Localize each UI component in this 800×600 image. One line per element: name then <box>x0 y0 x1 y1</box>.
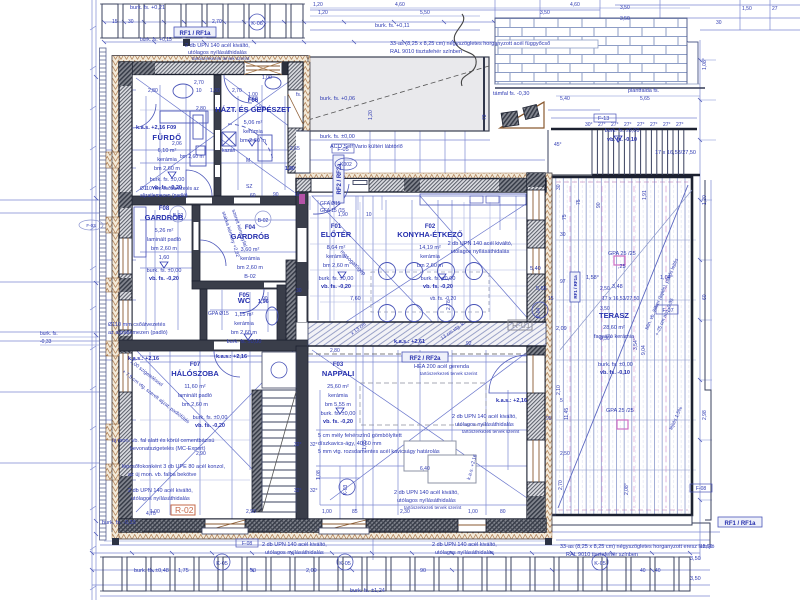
svg-text:HÁZT. ÉS GÉPÉSZET: HÁZT. ÉS GÉPÉSZET <box>215 105 291 114</box>
svg-text:RF1 / RF1a: RF1 / RF1a <box>179 31 211 37</box>
svg-text:2,80: 2,80 <box>196 106 206 112</box>
svg-text:27°: 27° <box>650 122 658 128</box>
svg-text:k.a.s.: +2,16: k.a.s.: +2,16 <box>496 398 527 404</box>
svg-text:2 db UPN 140 acél kiváltó,: 2 db UPN 140 acél kiváltó, <box>432 542 497 548</box>
svg-text:GPA 25 /25: GPA 25 /25 <box>606 408 634 414</box>
svg-text:K-05: K-05 <box>594 561 606 567</box>
svg-text:plántfalda fs.: plántfalda fs. <box>628 88 660 94</box>
svg-text:2,70: 2,70 <box>212 19 222 25</box>
svg-text:burk. fs. +0,21: burk. fs. +0,21 <box>130 5 165 11</box>
svg-text:1,60: 1,60 <box>159 255 170 261</box>
svg-text:bm 2,60 m: bm 2,60 m <box>182 402 208 408</box>
svg-text:burk. fs. ±1,24: burk. fs. ±1,24 <box>350 588 385 594</box>
svg-text:támfal fs. -0,30: támfal fs. -0,30 <box>493 91 529 97</box>
svg-text:fs.: fs. <box>296 92 301 98</box>
svg-text:3,54°: 3,54° <box>633 338 639 350</box>
svg-text:2,98: 2,98 <box>702 410 708 420</box>
svg-text:30: 30 <box>556 184 562 190</box>
svg-text:tartószerkezeti tervek szerint: tartószerkezeti tervek szerint <box>420 371 478 376</box>
svg-text:10: 10 <box>366 212 372 218</box>
svg-text:5,40: 5,40 <box>530 266 541 272</box>
svg-text:2,80: 2,80 <box>148 88 158 94</box>
svg-text:32°: 32° <box>310 442 318 448</box>
svg-text:bm 2,60 m: bm 2,60 m <box>151 246 177 252</box>
svg-text:2,50: 2,50 <box>560 451 570 457</box>
svg-text:2 db UPN 140 acél kiváltó,: 2 db UPN 140 acél kiváltó, <box>452 414 517 420</box>
svg-text:7,60: 7,60 <box>350 296 361 302</box>
svg-text:2,65: 2,65 <box>290 146 300 152</box>
svg-text:1,15 m²: 1,15 m² <box>235 312 254 318</box>
svg-text:RF2 / RF2a: RF2 / RF2a <box>409 356 441 362</box>
svg-text:5: 5 <box>560 398 563 404</box>
svg-text:5,40: 5,40 <box>560 96 570 102</box>
svg-text:vb. fs. -0,20: vb. fs. -0,20 <box>195 423 225 429</box>
svg-text:F07: F07 <box>190 362 201 368</box>
svg-text:2,70: 2,70 <box>194 80 204 86</box>
svg-text:1,00: 1,00 <box>262 75 272 81</box>
svg-text:TERASZ: TERASZ <box>599 311 629 320</box>
svg-text:bm 5,55 m: bm 5,55 m <box>325 402 351 408</box>
svg-text:K-05: K-05 <box>339 561 351 567</box>
svg-text:15: 15 <box>548 296 554 302</box>
svg-text:tartószerkezeti tervek szerint: tartószerkezeti tervek szerint <box>462 429 520 434</box>
svg-text:B-02: B-02 <box>173 213 184 219</box>
svg-text:2,50: 2,50 <box>600 286 610 292</box>
svg-text:kerámia: kerámia <box>328 393 349 399</box>
svg-text:1,20: 1,20 <box>368 110 374 120</box>
svg-text:díszkavics-ágy, 40-60 mm: díszkavics-ágy, 40-60 mm <box>318 441 382 447</box>
svg-text:vb. fs. -0,20: vb. fs. -0,20 <box>430 296 456 302</box>
svg-text:GPA Ø15: GPA Ø15 <box>208 311 229 317</box>
svg-text:2,06: 2,06 <box>172 141 182 147</box>
svg-text:laminált padló: laminált padló <box>147 237 181 243</box>
svg-text:5 mm vtg. rozsdamentes acél ka: 5 mm vtg. rozsdamentes acél kavicságy ha… <box>318 449 440 455</box>
svg-text:6,10 m²: 6,10 m² <box>158 148 177 154</box>
svg-text:2,70: 2,70 <box>232 88 242 94</box>
svg-text:28,60 m²: 28,60 m² <box>603 325 625 331</box>
svg-text:vb. fs. -0,20: vb. fs. -0,20 <box>323 419 353 425</box>
svg-text:10: 10 <box>294 192 300 198</box>
svg-text:1,00: 1,00 <box>468 509 478 515</box>
svg-text:2,50°: 2,50° <box>600 336 612 342</box>
svg-text:3,60 m²: 3,60 m² <box>241 247 260 253</box>
svg-text:vb. fs. -0,20: vb. fs. -0,20 <box>149 276 179 282</box>
svg-text:1,80: 1,80 <box>285 166 295 172</box>
svg-text:13,90: 13,90 <box>700 544 713 550</box>
svg-text:Ø110 mm csőátvezetés az: Ø110 mm csőátvezetés az <box>140 186 199 192</box>
svg-text:2,08°: 2,08° <box>624 483 630 495</box>
svg-text:40: 40 <box>640 568 646 574</box>
svg-text:2,90: 2,90 <box>196 451 206 457</box>
svg-text:bm 2,60 m: bm 2,60 m <box>231 330 257 336</box>
svg-text:2,90: 2,90 <box>246 509 256 515</box>
svg-text:F03: F03 <box>333 362 344 368</box>
svg-text:kerámia: kerámia <box>243 129 264 135</box>
svg-text:1,08: 1,08 <box>316 470 322 480</box>
svg-text:11,45: 11,45 <box>564 408 570 420</box>
svg-text:95: 95 <box>546 416 552 422</box>
svg-text:32°: 32° <box>310 488 318 494</box>
svg-text:10: 10 <box>196 88 202 94</box>
svg-text:lépcsőfokonként 3 db UPE 80 ac: lépcsőfokonként 3 db UPE 80 acél konzol, <box>122 464 226 470</box>
svg-text:30: 30 <box>560 232 566 238</box>
svg-text:92: 92 <box>466 341 472 347</box>
svg-text:3,50: 3,50 <box>600 306 610 312</box>
svg-text:bm 2,60 m: bm 2,60 m <box>240 138 266 144</box>
svg-text:F-03: F-03 <box>86 223 96 228</box>
svg-text:KONYHA-ÉTKEZŐ: KONYHA-ÉTKEZŐ <box>397 230 463 239</box>
svg-text:1,00: 1,00 <box>322 509 332 515</box>
svg-text:utólagos nyílásáthidalás: utólagos nyílásáthidalás <box>455 422 514 428</box>
svg-text:33-as (8,25 x 8,25 cm) négyszö: 33-as (8,25 x 8,25 cm) négyszögletes hor… <box>390 41 550 47</box>
svg-text:HÁLÓSZOBA: HÁLÓSZOBA <box>171 369 219 378</box>
svg-text:90: 90 <box>250 568 256 574</box>
svg-text:F08: F08 <box>159 206 170 212</box>
svg-text:30°: 30° <box>585 122 593 128</box>
svg-text:bm 2,60 m: bm 2,60 m <box>180 154 204 160</box>
svg-text:burk. fs.: burk. fs. <box>40 331 58 337</box>
svg-text:3,50: 3,50 <box>620 5 630 11</box>
svg-text:2 db UPN 140 acél kiváltó,: 2 db UPN 140 acél kiváltó, <box>394 490 459 496</box>
svg-text:RF1 / RF1a: RF1 / RF1a <box>573 275 578 299</box>
svg-text:3,50: 3,50 <box>620 16 630 22</box>
svg-text:kerámia: kerámia <box>157 157 178 163</box>
svg-text:27°: 27° <box>611 122 619 128</box>
svg-text:14,19 m²: 14,19 m² <box>419 245 441 251</box>
svg-text:1,60: 1,60 <box>256 106 266 112</box>
svg-text:30: 30 <box>296 288 302 294</box>
svg-text:burk. fs. +0,06: burk. fs. +0,06 <box>320 96 355 102</box>
svg-text:4,75: 4,75 <box>146 511 156 517</box>
svg-text:bm 2,60 m: bm 2,60 m <box>417 263 443 269</box>
svg-text:új mon. vb. fal alatt és körül: új mon. vb. fal alatt és körül cementbáz… <box>112 438 214 444</box>
svg-text:burk. fs. ±0,00: burk. fs. ±0,00 <box>321 411 356 417</box>
svg-text:5,50: 5,50 <box>420 10 430 16</box>
svg-text:32°: 32° <box>294 442 302 448</box>
svg-text:WC: WC <box>238 296 251 305</box>
svg-text:k.a.s.: +2,16: k.a.s.: +2,16 <box>216 354 247 360</box>
svg-text:kazán: kazán <box>222 148 236 154</box>
svg-text:bm 2,60 m: bm 2,60 m <box>237 265 263 271</box>
svg-text:utólagos nyílásáthidalás: utólagos nyílásáthidalás <box>451 249 510 255</box>
svg-text:90: 90 <box>262 296 268 302</box>
svg-text:K-05: K-05 <box>216 561 228 567</box>
svg-text:burk. fs. ±0,00: burk. fs. ±0,00 <box>320 134 355 140</box>
svg-text:4,60: 4,60 <box>570 2 580 8</box>
svg-text:33-as (8,25 x 8,25 cm) négyszö: 33-as (8,25 x 8,25 cm) négyszögletes hor… <box>560 544 714 550</box>
svg-text:27°: 27° <box>676 122 684 128</box>
svg-text:27: 27 <box>772 6 778 12</box>
svg-text:90: 90 <box>273 192 279 198</box>
svg-text:75: 75 <box>576 199 582 205</box>
svg-text:-0,33: -0,33 <box>40 339 52 345</box>
svg-text:RAL 9010 tisztafehér színben: RAL 9010 tisztafehér színben <box>390 49 462 55</box>
svg-text:ELŐTÉR: ELŐTÉR <box>321 230 352 239</box>
svg-text:utólagos nyílásáthidalás: utólagos nyílásáthidalás <box>397 498 456 504</box>
svg-text:GFA Ø15: GFA Ø15 <box>320 201 341 207</box>
svg-text:F04: F04 <box>245 225 256 231</box>
svg-text:kerámia: kerámia <box>420 254 441 260</box>
svg-text:1,65: 1,65 <box>362 440 368 450</box>
svg-text:M: M <box>246 158 250 164</box>
svg-text:25,60 m²: 25,60 m² <box>327 384 349 390</box>
svg-text:60: 60 <box>702 294 708 300</box>
svg-text:burk. fs. ±0,00: burk. fs. ±0,00 <box>150 177 185 183</box>
svg-text:HEA 200 acél gerenda: HEA 200 acél gerenda <box>414 364 470 370</box>
svg-text:3,48: 3,48 <box>612 284 623 290</box>
svg-text:60: 60 <box>250 193 256 199</box>
svg-text:3,50: 3,50 <box>690 556 701 562</box>
svg-text:B-02: B-02 <box>244 274 256 280</box>
svg-text:k.a.s. +2,16 F09: k.a.s. +2,16 F09 <box>136 125 176 131</box>
svg-text:burk. fs. +0,11: burk. fs. +0,11 <box>375 23 410 29</box>
svg-text:1,20: 1,20 <box>313 2 323 8</box>
svg-text:vb. fs. -0,10: vb. fs. -0,10 <box>607 137 637 143</box>
svg-text:2,70: 2,70 <box>558 480 564 490</box>
svg-text:burk. fs. ±0,00: burk. fs. ±0,00 <box>319 276 354 282</box>
svg-text:K002: K002 <box>340 162 352 168</box>
svg-text:k.a.s.: +2,61: k.a.s.: +2,61 <box>394 339 425 345</box>
svg-text:9,04: 9,04 <box>641 345 647 355</box>
svg-text:27°: 27° <box>598 122 606 128</box>
svg-text:2 db UPN 140 acél kiváltó,: 2 db UPN 140 acél kiváltó, <box>448 241 513 247</box>
svg-text:90: 90 <box>420 568 426 574</box>
svg-text:15: 15 <box>112 19 118 25</box>
svg-text:45°: 45° <box>554 142 562 148</box>
svg-text:2,30: 2,30 <box>400 509 410 515</box>
svg-text:vb. fs. -0,20: vb. fs. -0,20 <box>321 284 351 290</box>
svg-text:2 db UPN 140 acél kiváltó,: 2 db UPN 140 acél kiváltó, <box>128 488 193 494</box>
svg-text:2,09: 2,09 <box>556 326 567 332</box>
svg-text:,25: ,25 <box>618 264 626 270</box>
svg-text:tartószerkezeti tervek szerint: tartószerkezeti tervek szerint <box>404 505 462 510</box>
svg-text:kerámia: kerámia <box>234 321 255 327</box>
svg-text:SZ: SZ <box>246 184 252 190</box>
svg-text:burk. fs. ±0,00: burk. fs. ±0,00 <box>605 128 640 134</box>
svg-text:RF1 / RF1a: RF1 / RF1a <box>724 521 756 527</box>
svg-text:RAL 9010 tisztafehér színben: RAL 9010 tisztafehér színben <box>566 552 638 558</box>
svg-text:az aljzatlemezen (padló): az aljzatlemezen (padló) <box>108 330 168 336</box>
svg-text:bevonatszigetelés (MC-Expert): bevonatszigetelés (MC-Expert) <box>130 446 206 452</box>
svg-text:30: 30 <box>128 19 134 25</box>
svg-text:F-08: F-08 <box>696 486 707 492</box>
svg-text:az új mon. vb. falba bekötve: az új mon. vb. falba bekötve <box>128 472 196 478</box>
svg-text:R-01: R-01 <box>512 320 531 330</box>
svg-text:40: 40 <box>655 568 661 574</box>
svg-text:4,60: 4,60 <box>395 2 405 8</box>
svg-text:laminált padló: laminált padló <box>178 393 212 399</box>
svg-text:5,26 m²: 5,26 m² <box>155 228 174 234</box>
svg-text:burk. fs. ±0,00: burk. fs. ±0,00 <box>421 276 456 282</box>
svg-text:K-03: K-03 <box>343 485 349 496</box>
svg-text:17 x 16,53/27,50: 17 x 16,53/27,50 <box>602 296 639 302</box>
svg-text:1,60: 1,60 <box>248 96 258 102</box>
svg-text:17 x 16,53/27,50: 17 x 16,53/27,50 <box>655 150 696 156</box>
svg-text:73: 73 <box>482 114 488 120</box>
svg-text:1,20: 1,20 <box>702 195 708 205</box>
svg-text:B-02: B-02 <box>258 218 269 224</box>
svg-text:1,50: 1,50 <box>742 6 752 12</box>
svg-text:90: 90 <box>596 202 602 208</box>
svg-text:kerámia: kerámia <box>240 256 261 262</box>
svg-text:5,65: 5,65 <box>536 286 547 292</box>
svg-text:85: 85 <box>352 509 358 515</box>
svg-text:K-04: K-04 <box>536 308 542 319</box>
svg-text:GPA 25 /25: GPA 25 /25 <box>608 251 636 257</box>
svg-text:Ø110 mm csőátvezetés: Ø110 mm csőátvezetés <box>108 322 166 328</box>
svg-text:11,60 m²: 11,60 m² <box>184 384 205 390</box>
svg-text:1,91: 1,91 <box>642 190 648 200</box>
svg-text:5,06 m²: 5,06 m² <box>244 120 263 126</box>
svg-text:1,08°: 1,08° <box>702 58 708 70</box>
svg-text:32°: 32° <box>294 488 302 494</box>
svg-text:utólagos nyílásáthidalás: utólagos nyílásáthidalás <box>265 550 324 556</box>
svg-text:3,50: 3,50 <box>690 576 701 582</box>
svg-text:80: 80 <box>500 509 506 515</box>
svg-text:1,00: 1,00 <box>210 88 220 94</box>
svg-text:aljzatlemezen (padló): aljzatlemezen (padló) <box>140 193 188 199</box>
svg-text:1,20: 1,20 <box>318 10 328 16</box>
svg-text:30: 30 <box>716 20 722 26</box>
svg-text:vb. fs. -0,20: vb. fs. -0,20 <box>423 284 453 290</box>
svg-text:27°: 27° <box>637 122 645 128</box>
svg-text:tartószerkezeti tervek szerint: tartószerkezeti tervek szerint <box>192 56 250 61</box>
svg-text:5 cm mély fehérszínű gömbölyít: 5 cm mély fehérszínű gömbölyített <box>318 433 402 439</box>
svg-text:utólagos nyílásáthidalás: utólagos nyílásáthidalás <box>435 550 494 556</box>
svg-text:75: 75 <box>562 214 568 220</box>
svg-text:burk. fs. ±0,00: burk. fs. ±0,00 <box>147 268 182 274</box>
svg-text:F-08: F-08 <box>242 541 253 547</box>
svg-text:F-05: F-05 <box>337 147 348 153</box>
svg-text:27°: 27° <box>663 122 671 128</box>
svg-text:R-02: R-02 <box>175 505 194 515</box>
svg-text:1,75: 1,75 <box>178 568 189 574</box>
svg-text:NAPPALI: NAPPALI <box>322 369 354 378</box>
svg-text:2 db UPN 140 acél kiváltó,: 2 db UPN 140 acél kiváltó, <box>185 43 250 49</box>
svg-text:27°: 27° <box>624 122 632 128</box>
svg-text:1,58°: 1,58° <box>586 275 599 281</box>
svg-text:burk. fs. +0,15: burk. fs. +0,15 <box>140 37 172 43</box>
svg-text:bm 2,60 m: bm 2,60 m <box>154 166 180 172</box>
svg-text:GARDRÓB: GARDRÓB <box>231 232 270 241</box>
svg-text:utólagos nyílásáthidalás: utólagos nyílásáthidalás <box>131 496 190 502</box>
svg-text:burk. fs. ±0,00: burk. fs. ±0,00 <box>227 339 262 345</box>
svg-text:5,65: 5,65 <box>640 96 650 102</box>
svg-text:2,80: 2,80 <box>330 348 340 354</box>
svg-text:bm 2,60 m: bm 2,60 m <box>323 263 349 269</box>
svg-text:6,40: 6,40 <box>420 466 430 472</box>
svg-text:burk. fs. ±0,00: burk. fs. ±0,00 <box>193 415 228 421</box>
svg-text:K-06: K-06 <box>251 21 263 27</box>
svg-text:burk. fs. -0,33: burk. fs. -0,33 <box>102 520 136 526</box>
svg-text:3,50: 3,50 <box>540 10 550 16</box>
svg-text:burk. fs. ±0,48: burk. fs. ±0,48 <box>134 568 169 574</box>
svg-text:97: 97 <box>560 279 566 285</box>
svg-text:burk. fs. ±0,00: burk. fs. ±0,00 <box>598 362 633 368</box>
svg-text:2 db UPN 140 acél kiváltó,: 2 db UPN 140 acél kiváltó, <box>262 542 327 548</box>
svg-text:1,90: 1,90 <box>338 212 348 218</box>
svg-text:vb. fs. -0,10: vb. fs. -0,10 <box>600 370 630 376</box>
svg-text:2,10: 2,10 <box>556 385 562 395</box>
svg-text:2,09: 2,09 <box>306 568 317 574</box>
